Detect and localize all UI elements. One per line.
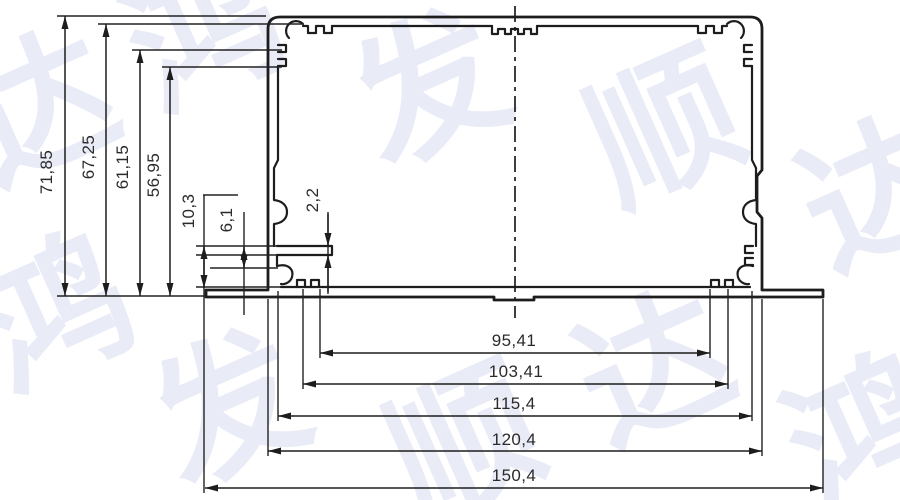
dim-label-95-41: 95,41: [492, 331, 537, 351]
extension-lines: [57, 16, 823, 493]
dim-label-67-25: 67,25: [79, 135, 99, 180]
profile-bottom-left-corner: [277, 265, 319, 287]
profile-bottom-right-corner: [711, 265, 753, 287]
profile-right-inner-wall: [743, 66, 756, 246]
dim-label-150-4: 150,4: [492, 466, 537, 486]
dim-label-6-1: 6,1: [217, 208, 237, 233]
technical-drawing-canvas: 达 鸿 发 顺 达 鸿 发 顺 达 鸿: [0, 0, 900, 500]
profile-right-wall-teeth: [745, 246, 753, 266]
profile-top-right-corner: [698, 21, 752, 66]
dim-label-56-95: 56,95: [144, 153, 164, 198]
dim-label-71-85: 71,85: [37, 150, 57, 195]
dim-label-115-4: 115,4: [492, 394, 535, 414]
dim-label-61-15: 61,15: [113, 145, 133, 190]
dim-label-103-41: 103,41: [489, 362, 543, 382]
dim-label-120-4: 120,4: [492, 430, 537, 450]
dim-label-10-3: 10,3: [179, 194, 199, 229]
dim-label-2-2: 2,2: [303, 188, 323, 213]
profile-drawing: [0, 0, 900, 500]
profile-left-shelf: [277, 246, 332, 266]
profile-left-inner-wall: [274, 66, 287, 246]
dimension-lines: [65, 16, 823, 488]
profile-top-left-corner: [278, 21, 332, 66]
